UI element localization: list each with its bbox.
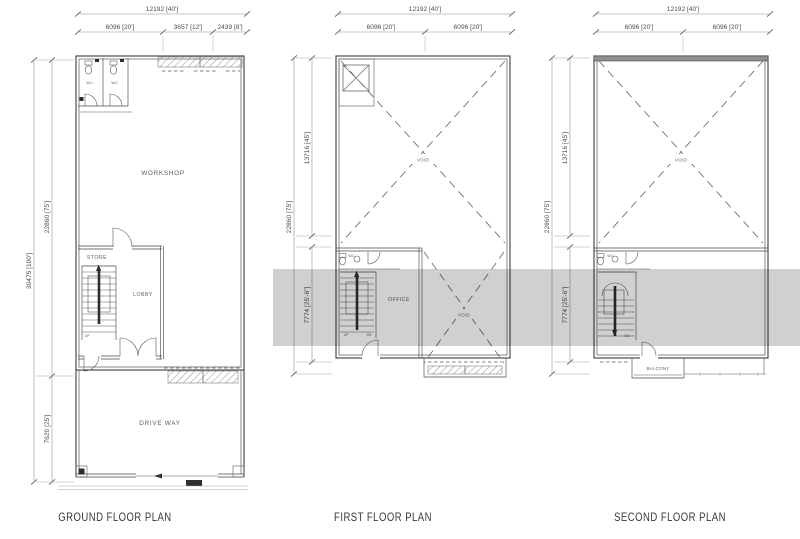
- void-cross-lines: VOID: [424, 252, 504, 363]
- void-cross-lines: VOID: [341, 61, 505, 243]
- second-floor-plan: 12192 [40'] 6096 [20'] 6096 [20'] 22860 …: [544, 6, 773, 378]
- door-swing-icon: [84, 356, 99, 371]
- stair-dn-label: DN: [625, 334, 630, 338]
- wc-label: W.C.: [348, 254, 355, 258]
- dim-label-segment: 6096 [20']: [713, 24, 742, 31]
- room-label-void: VOID: [675, 158, 687, 163]
- parapet-wall: [594, 56, 768, 61]
- driveway-boundary: [58, 370, 248, 490]
- gate-arrow-icon: [154, 474, 162, 479]
- dim-label-segment: 6096 [20']: [106, 24, 135, 31]
- balcony: BALCONY: [632, 358, 684, 378]
- stair-icon: UP DN: [340, 271, 376, 339]
- front-louvre-band: [424, 358, 506, 377]
- door-swing-icon: [113, 228, 132, 247]
- building-outline: [76, 56, 244, 370]
- title-first-floor: FIRST FLOOR PLAN: [334, 511, 432, 524]
- lobby-front-wall: [78, 338, 162, 371]
- blueprint-canvas: 12192 [40'] 6096 [20'] 3657 [12'] 2439 […: [0, 0, 800, 539]
- door-swing-icon: [110, 94, 122, 106]
- first-floor-plan: 12192 [40'] 6096 [20'] 6096 [20'] 22860 …: [286, 6, 515, 377]
- door-swing-icon: [85, 94, 97, 106]
- dimension-lines-left: 22860 [75'] 13716 [45'] 7774 [25'-6"]: [286, 55, 332, 376]
- building-outline: [336, 56, 510, 358]
- dim-label-segment: 13716 [45']: [304, 132, 311, 165]
- door-swing-icon: [626, 252, 638, 264]
- louvre-hatch-band: [158, 57, 242, 71]
- stair-dn-label: DN: [367, 333, 372, 337]
- room-label-void: VOID: [458, 313, 470, 318]
- dim-label-segment: 7774 [25'-6"]: [304, 286, 311, 323]
- dim-label-overall-width: 12192 [40']: [146, 6, 179, 13]
- stair-icon: DN: [598, 272, 636, 340]
- dim-label-segment: 6096 [20']: [625, 24, 654, 31]
- wc-label: W.C.: [111, 81, 118, 85]
- dim-label-segment: 6096 [20']: [367, 24, 396, 31]
- wc-label: W.C.: [607, 254, 614, 258]
- wc-cubicles: W.C. W.C.: [78, 58, 132, 112]
- dim-label-overall-height: 22860 [75']: [544, 201, 551, 234]
- toilet-icon: [85, 61, 92, 74]
- ground-floor-plan: 12192 [40'] 6096 [20'] 3657 [12'] 2439 […: [26, 6, 250, 490]
- canopy-edge: [684, 358, 766, 376]
- ac-ledge: [339, 59, 374, 106]
- dim-label-overall-height: 22860 [75']: [286, 201, 293, 234]
- room-label-workshop: WORKSHOP: [141, 170, 185, 177]
- room-label-lobby: LOBBY: [133, 292, 153, 298]
- plan-titles: GROUND FLOOR PLAN FIRST FLOOR PLAN SECON…: [58, 511, 726, 524]
- double-door-icon: [120, 338, 156, 356]
- dim-label-overall-width: 12192 [40']: [667, 6, 700, 13]
- building-outline: [594, 56, 768, 358]
- dim-label-segment: 7620 [25']: [44, 414, 51, 443]
- room-label-office: OFFICE: [388, 297, 410, 303]
- dim-label-segment: 3657 [12']: [174, 24, 203, 31]
- gate-motor-icon: [186, 480, 202, 486]
- title-ground-floor: GROUND FLOOR PLAN: [58, 511, 171, 524]
- dimension-lines-left: 30475 [100'] 22860 [75'] 7620 [25']: [26, 57, 74, 484]
- dim-label-overall-height: 30475 [100']: [26, 253, 33, 289]
- stair-up-label: UP: [85, 334, 90, 338]
- dimension-lines-top: 12192 [40'] 6096 [20'] 6096 [20']: [593, 6, 773, 52]
- toilet-icon: [597, 254, 604, 266]
- dim-label-overall-width: 12192 [40']: [409, 6, 442, 13]
- dim-label-segment: 2439 [8']: [217, 24, 242, 31]
- door-swing-icon: [368, 252, 380, 264]
- void-cross-lines: VOID: [599, 61, 763, 243]
- wc-label: W.C.: [86, 81, 93, 85]
- office-block: W.C. UP DN OFFICE: [336, 248, 422, 361]
- dim-label-segment: 13716 [45']: [562, 132, 569, 165]
- floor-plans-drawing: 12192 [40'] 6096 [20'] 3657 [12'] 2439 […: [0, 0, 800, 539]
- dimension-lines-left: 22860 [75'] 13716 [45'] 7774 [25'-6"]: [544, 55, 590, 376]
- rear-block: W.C. DN: [594, 248, 768, 362]
- dimension-lines-top: 12192 [40'] 6096 [20'] 6096 [20']: [335, 6, 515, 52]
- room-label-driveway: DRIVE WAY: [139, 420, 180, 427]
- dim-label-segment: 6096 [20']: [454, 24, 483, 31]
- room-label-void: VOID: [417, 158, 429, 163]
- dim-label-segment: 7774 [25'-6"]: [562, 286, 569, 323]
- room-label-balcony: BALCONY: [646, 366, 669, 371]
- title-second-floor: SECOND FLOOR PLAN: [614, 511, 726, 524]
- dimension-lines-top: 12192 [40'] 6096 [20'] 3657 [12'] 2439 […: [75, 6, 250, 52]
- dim-label-segment: 22860 [75']: [44, 201, 51, 234]
- room-label-store: STORE: [87, 255, 107, 261]
- door-swing-icon: [642, 342, 656, 356]
- stair-up-label: UP: [344, 333, 349, 337]
- stair-icon: UP: [82, 265, 116, 341]
- toilet-icon: [339, 254, 346, 266]
- toilet-icon: [110, 61, 117, 74]
- door-swing-icon: [362, 340, 378, 356]
